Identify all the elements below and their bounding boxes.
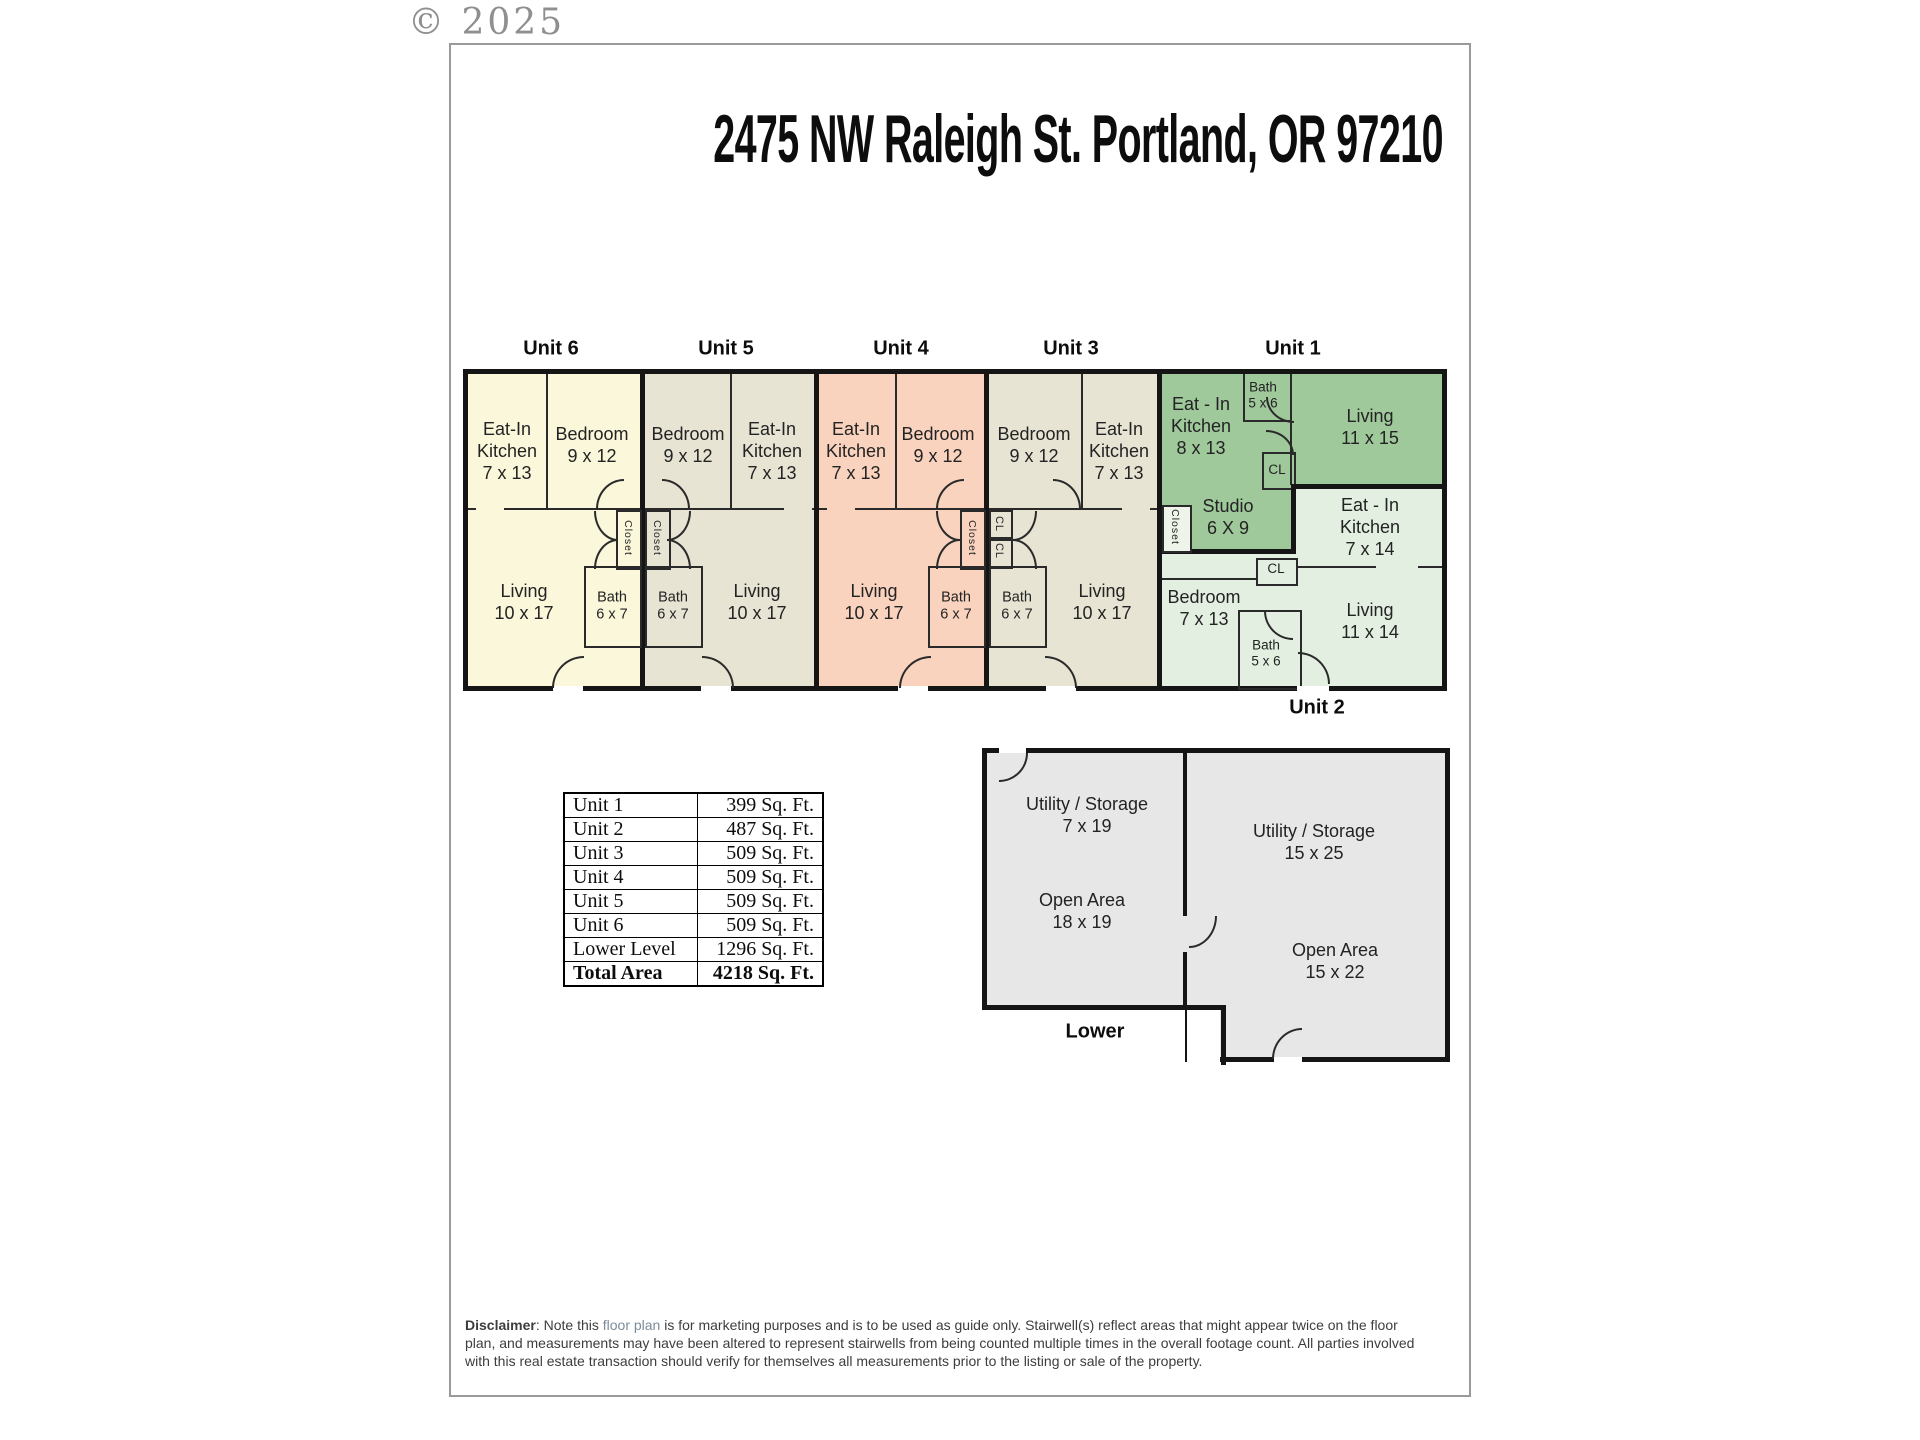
unit2-kitchen-wall-a bbox=[1296, 566, 1376, 568]
unit6-bedroom-label: Bedroom 9 x 12 bbox=[555, 424, 628, 468]
table-row: Unit 6509 Sq. Ft. bbox=[564, 914, 823, 938]
unit3-living-label: Living 10 x 17 bbox=[1072, 581, 1131, 625]
unit4-kitchen-label: Eat-In Kitchen 7 x 13 bbox=[826, 419, 886, 485]
unit5-closet-label: Closet bbox=[651, 520, 663, 556]
unit1-unit2-divider-wall bbox=[1294, 484, 1442, 489]
studio-wall-right bbox=[1291, 484, 1296, 554]
lower-left-storage-label: Utility / Storage 7 x 19 bbox=[1026, 794, 1148, 838]
unit2-bedroom-wall bbox=[1162, 578, 1258, 580]
unit2-bath-label: Bath 5 x 6 bbox=[1251, 637, 1280, 668]
unit-area-cell: 509 Sq. Ft. bbox=[698, 890, 824, 914]
lower-right-open-label: Open Area 15 x 22 bbox=[1292, 940, 1378, 984]
unit3-wall-opening bbox=[1122, 508, 1150, 510]
copyright-watermark: © 2025 bbox=[408, 2, 565, 43]
unit3-kitchen-label: Eat-In Kitchen 7 x 13 bbox=[1089, 419, 1149, 485]
unit4-wall-opening bbox=[827, 508, 855, 510]
unit1-label: Unit 1 bbox=[1265, 338, 1321, 361]
table-row: Unit 5509 Sq. Ft. bbox=[564, 890, 823, 914]
unit1-closet-label: Closet bbox=[1169, 509, 1181, 545]
area-table: Unit 1399 Sq. Ft. Unit 2487 Sq. Ft. Unit… bbox=[563, 792, 824, 987]
unit5-wall-opening bbox=[784, 508, 812, 510]
unit3-label: Unit 3 bbox=[1043, 338, 1099, 361]
unit1-studio-label: Studio 6 X 9 bbox=[1202, 496, 1253, 540]
unit-name-cell: Unit 6 bbox=[564, 914, 698, 938]
unit4-bath-label: Bath 6 x 7 bbox=[940, 589, 971, 622]
unit-name-cell: Unit 5 bbox=[564, 890, 698, 914]
unit2-kitchen-label: Eat - In Kitchen 7 x 14 bbox=[1340, 495, 1400, 561]
page-title-text: 2475 NW Raleigh St. Portland, OR 97210 bbox=[713, 100, 1443, 178]
unit-name-cell: Unit 4 bbox=[564, 866, 698, 890]
table-row: Unit 1399 Sq. Ft. bbox=[564, 793, 823, 818]
unit-name-cell: Unit 1 bbox=[564, 793, 698, 818]
total-name-cell: Total Area bbox=[564, 962, 698, 987]
unit-area-cell: 509 Sq. Ft. bbox=[698, 914, 824, 938]
unit1-cl-label: CL bbox=[1268, 462, 1285, 478]
disclaimer-floorplan-text: floor plan bbox=[603, 1317, 661, 1333]
unit2-kitchen-wall-b bbox=[1418, 566, 1442, 568]
unit5-kitchen-label: Eat-In Kitchen 7 x 13 bbox=[742, 419, 802, 485]
unit-name-cell: Unit 3 bbox=[564, 842, 698, 866]
page: © 2025 2475 NW Raleigh St. Portland, OR … bbox=[0, 0, 1920, 1440]
unit3-cl-lower-label: CL bbox=[993, 543, 1005, 559]
unit4-label: Unit 4 bbox=[873, 338, 929, 361]
unit-area-cell: 487 Sq. Ft. bbox=[698, 818, 824, 842]
lower-left-room bbox=[982, 748, 1185, 1010]
table-row-total: Total Area4218 Sq. Ft. bbox=[564, 962, 823, 987]
unit-area-cell: 509 Sq. Ft. bbox=[698, 842, 824, 866]
unit4-partition-v bbox=[895, 374, 897, 508]
lower-right-storage-label: Utility / Storage 15 x 25 bbox=[1253, 821, 1375, 865]
unit1-living-label: Living 11 x 15 bbox=[1341, 406, 1399, 450]
table-row: Unit 3509 Sq. Ft. bbox=[564, 842, 823, 866]
unit5-living-label: Living 10 x 17 bbox=[727, 581, 786, 625]
unit4-closet-label: Closet bbox=[966, 520, 978, 556]
unit6-wall-opening bbox=[476, 508, 504, 510]
unit6-label: Unit 6 bbox=[523, 338, 579, 361]
page-title: 2475 NW Raleigh St. Portland, OR 97210 bbox=[449, 100, 1469, 178]
unit1-bath-label: Bath 5 x 6 bbox=[1248, 379, 1277, 410]
unit6-partition-v bbox=[546, 374, 548, 508]
unit1-bath-wall-left bbox=[1243, 374, 1245, 422]
unit-name-cell: Lower Level bbox=[564, 938, 698, 962]
unit3-partition-v bbox=[1081, 374, 1083, 508]
unit2-cl-label: CL bbox=[1267, 561, 1284, 577]
unit5-bedroom-label: Bedroom 9 x 12 bbox=[651, 424, 724, 468]
lower-divider-door-gap bbox=[1181, 916, 1189, 952]
unit-area-cell: 1296 Sq. Ft. bbox=[698, 938, 824, 962]
unit2-label: Unit 2 bbox=[1289, 697, 1345, 720]
table-row: Unit 4509 Sq. Ft. bbox=[564, 866, 823, 890]
unit6-kitchen-label: Eat-In Kitchen 7 x 13 bbox=[477, 419, 537, 485]
unit2-living-label: Living 11 x 14 bbox=[1341, 600, 1399, 644]
unit2-entry-gap bbox=[1297, 686, 1329, 691]
disclaimer-prefix: Disclaimer bbox=[465, 1317, 536, 1333]
lower-left-open-label: Open Area 18 x 19 bbox=[1039, 890, 1125, 934]
unit4-bedroom-label: Bedroom 9 x 12 bbox=[901, 424, 974, 468]
unit6-closet-label: Closet bbox=[622, 520, 634, 556]
lower-level-label: Lower bbox=[1066, 1021, 1125, 1044]
unit5-partition-v bbox=[730, 374, 732, 508]
floorplan-sheet-border bbox=[449, 43, 1471, 1397]
unit5-bath-label: Bath 6 x 7 bbox=[657, 589, 688, 622]
unit4-living-label: Living 10 x 17 bbox=[844, 581, 903, 625]
unit1-kitchen-label: Eat - In Kitchen 8 x 13 bbox=[1171, 394, 1231, 460]
unit-area-cell: 399 Sq. Ft. bbox=[698, 793, 824, 818]
unit3-bedroom-label: Bedroom 9 x 12 bbox=[997, 424, 1070, 468]
unit-name-cell: Unit 2 bbox=[564, 818, 698, 842]
table-row: Lower Level1296 Sq. Ft. bbox=[564, 938, 823, 962]
disclaimer-text: Disclaimer: Note this floor plan is for … bbox=[465, 1316, 1467, 1371]
lower-notch-wall-top bbox=[1185, 1005, 1226, 1010]
table-row: Unit 2487 Sq. Ft. bbox=[564, 818, 823, 842]
unit5-label: Unit 5 bbox=[698, 338, 754, 361]
unit3-bath-label: Bath 6 x 7 bbox=[1001, 589, 1032, 622]
unit6-living-label: Living 10 x 17 bbox=[494, 581, 553, 625]
unit6-bath-label: Bath 6 x 7 bbox=[596, 589, 627, 622]
lower-notch-wall-side bbox=[1221, 1010, 1226, 1065]
unit-area-cell: 509 Sq. Ft. bbox=[698, 866, 824, 890]
disclaimer-body-before: : Note this bbox=[536, 1317, 603, 1333]
unit2-bedroom-label: Bedroom 7 x 13 bbox=[1167, 587, 1240, 631]
total-area-cell: 4218 Sq. Ft. bbox=[698, 962, 824, 987]
lower-footprint-notch bbox=[1187, 1008, 1220, 1065]
unit3-cl-upper-label: CL bbox=[993, 516, 1005, 532]
